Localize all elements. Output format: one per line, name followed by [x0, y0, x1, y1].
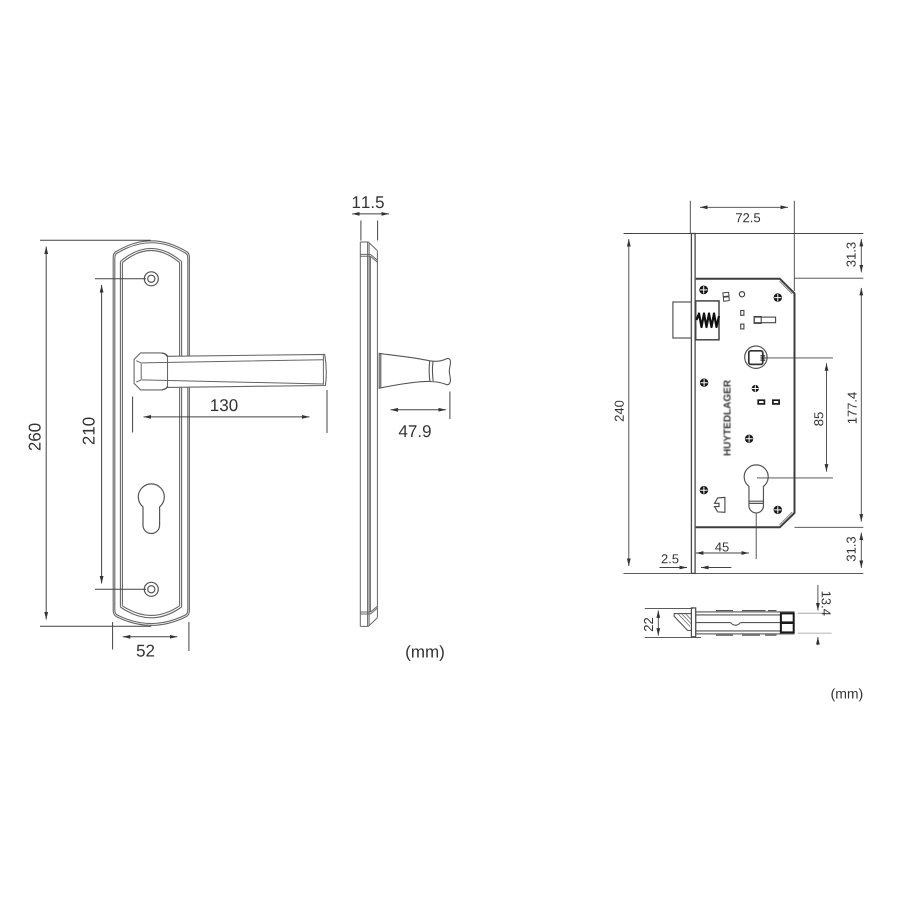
svg-text:HUYTEDLAGER: HUYTEDLAGER — [723, 379, 734, 456]
